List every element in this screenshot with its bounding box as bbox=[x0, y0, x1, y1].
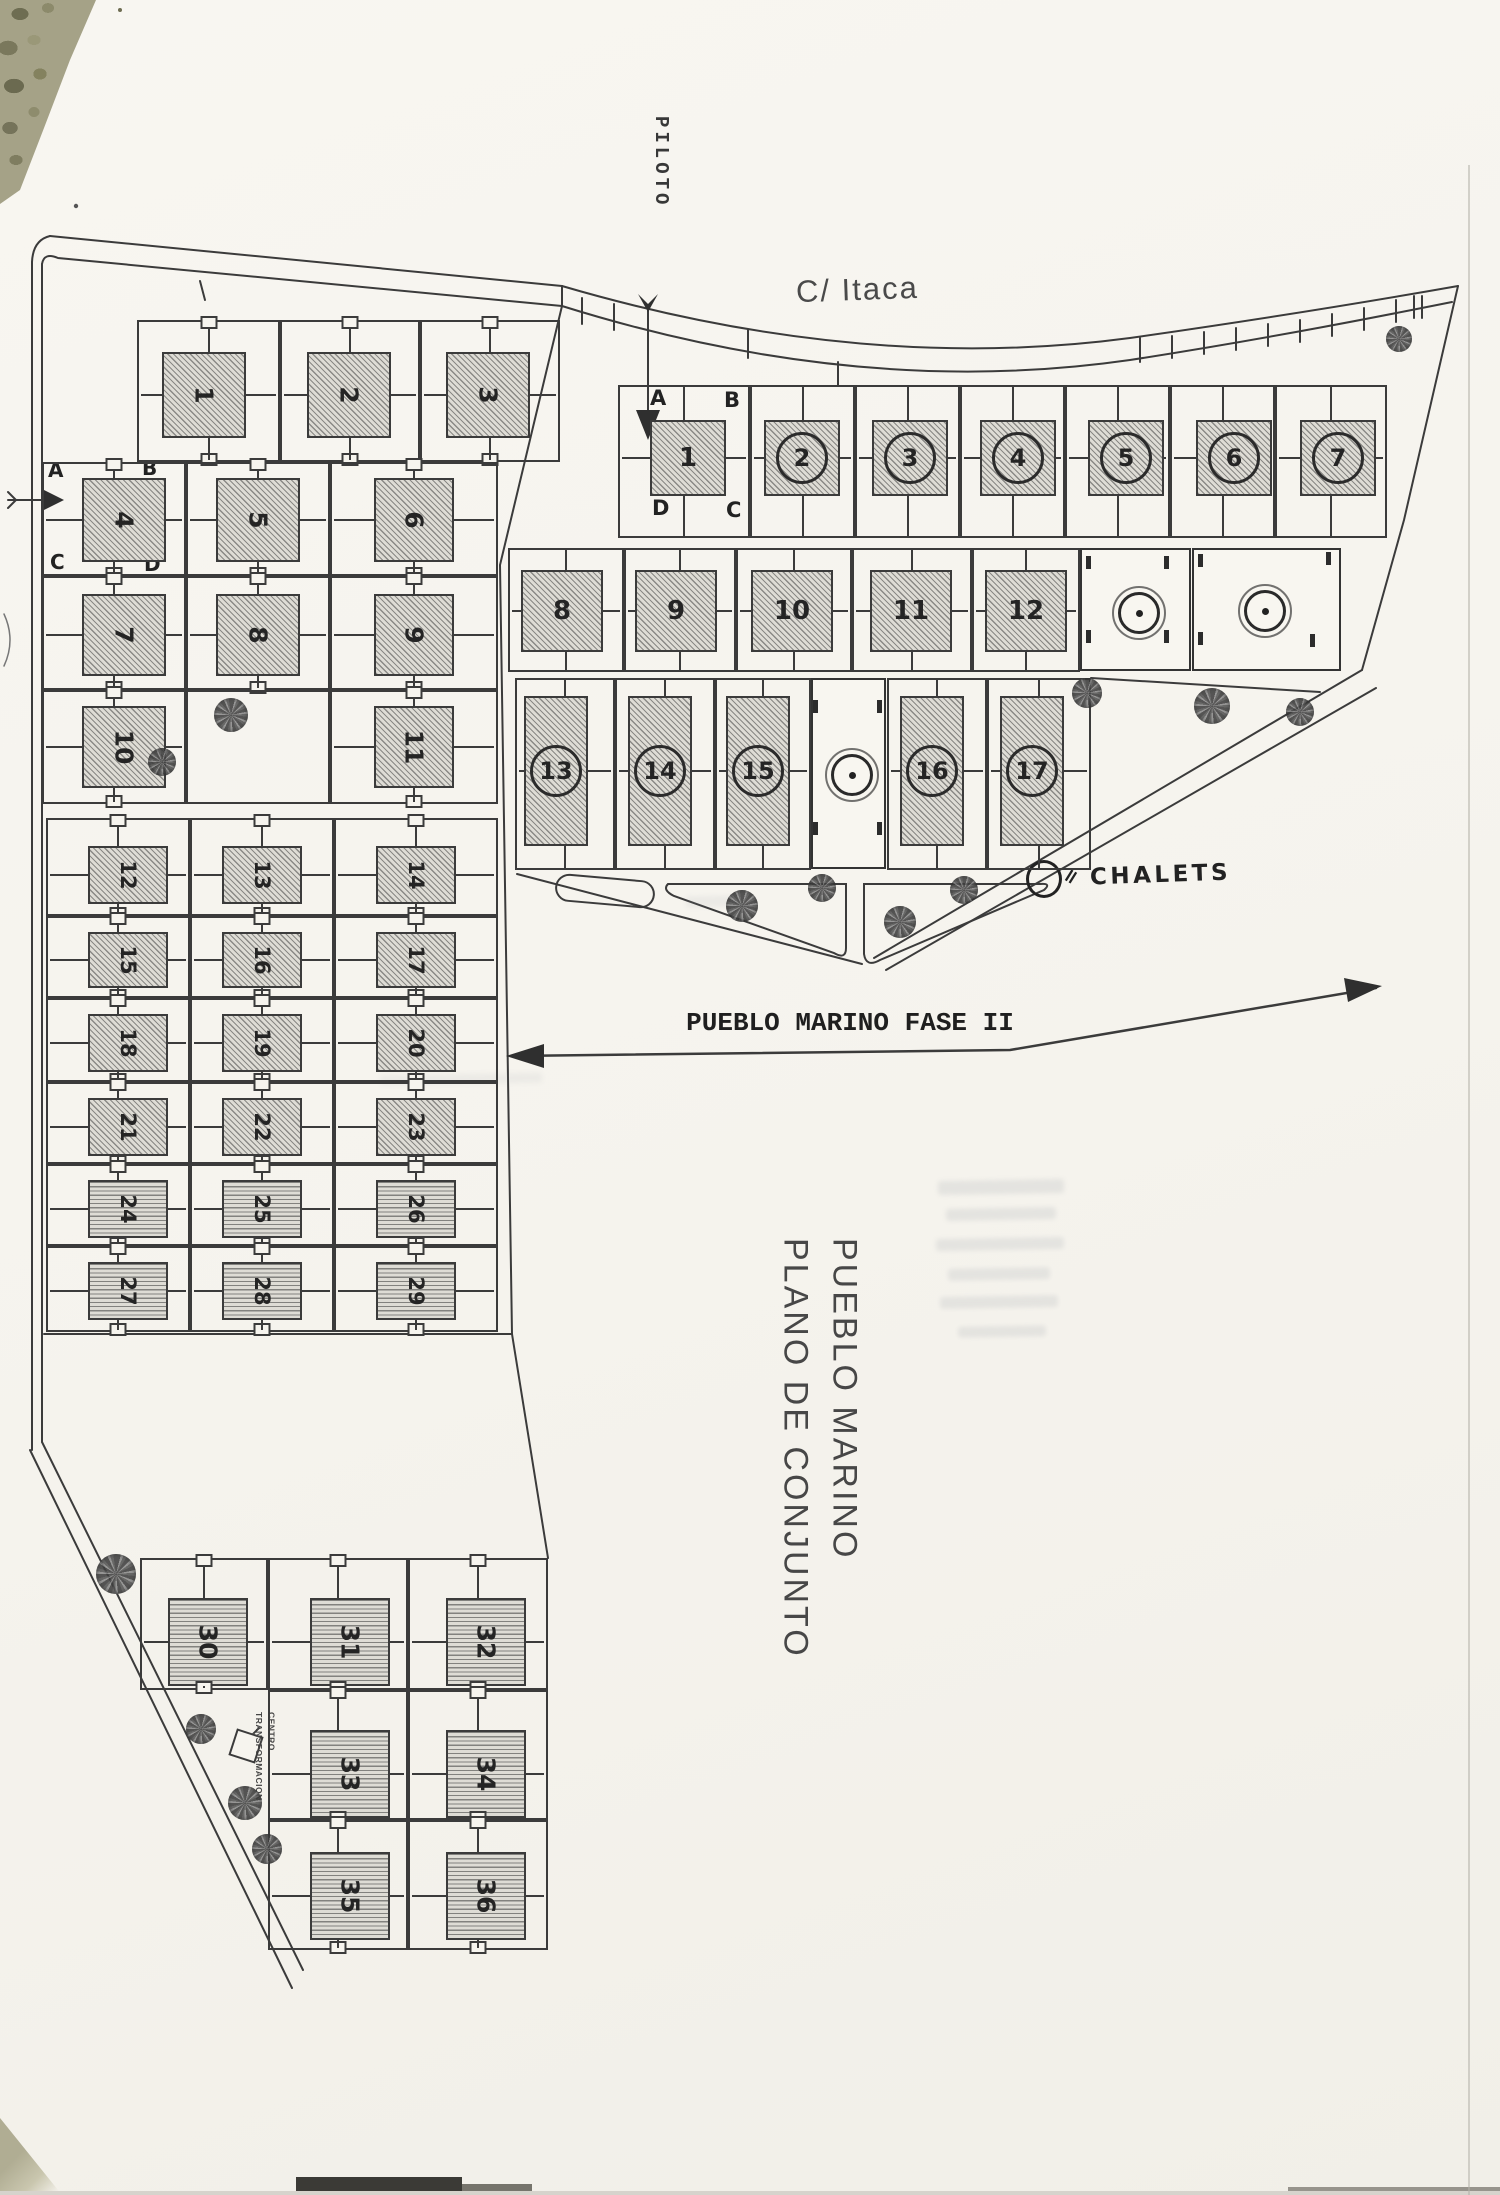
plot-number: 3 bbox=[884, 432, 936, 484]
plot-building: 2 bbox=[764, 420, 840, 496]
plot-cell-9: 9 bbox=[624, 548, 736, 672]
plot-cell-15: 15 bbox=[46, 916, 190, 998]
plot-building: 8 bbox=[521, 570, 603, 652]
gate-marker bbox=[406, 572, 423, 585]
plot-cell-14: 14 bbox=[334, 818, 498, 916]
plot-building: 33 bbox=[310, 1730, 390, 1818]
plot-number: 20 bbox=[404, 1028, 428, 1057]
plot-cell-31: 31 bbox=[268, 1558, 408, 1690]
plot-cell-11: 11 bbox=[330, 690, 498, 804]
plot-number: 24 bbox=[116, 1194, 140, 1223]
plot-building: 15 bbox=[88, 932, 168, 988]
gate-marker bbox=[110, 912, 127, 925]
plot-building: 12 bbox=[985, 570, 1067, 652]
plot-building: 32 bbox=[446, 1598, 526, 1686]
plot-building: 27 bbox=[88, 1262, 168, 1320]
gate-marker bbox=[254, 814, 271, 827]
street-name: C/ Itaca bbox=[795, 270, 919, 310]
plot-number: 28 bbox=[250, 1276, 274, 1305]
plot-cell-34: 34 bbox=[408, 1690, 548, 1820]
plot-cell-17: 17 bbox=[987, 678, 1091, 870]
plot-building: 9 bbox=[635, 570, 717, 652]
tree-icon bbox=[96, 1554, 136, 1594]
plot-number: 3 bbox=[474, 386, 503, 403]
scan-corner-texture bbox=[0, 0, 104, 212]
plot-cell-15: 15 bbox=[715, 678, 811, 870]
gate-marker bbox=[196, 1681, 213, 1694]
chalet-symbol-icon bbox=[831, 754, 873, 796]
plot-building: 8 bbox=[216, 594, 300, 676]
plot-number: 8 bbox=[553, 596, 571, 626]
gate-marker bbox=[408, 1242, 425, 1255]
corner-tick bbox=[1198, 554, 1203, 567]
corner-tick bbox=[1310, 634, 1315, 647]
drawing-title-line1: PUEBLO MARINO bbox=[819, 1238, 868, 1668]
tree-icon bbox=[252, 1834, 282, 1864]
plot-cell-13: 13 bbox=[190, 818, 334, 916]
plot-building: 1 bbox=[650, 420, 726, 496]
plot-building: 1 bbox=[162, 352, 246, 438]
plot-number: 17 bbox=[1006, 745, 1058, 797]
plot-building: 3 bbox=[446, 352, 530, 438]
chalet-symbol-icon bbox=[1244, 590, 1286, 632]
plot-number: 7 bbox=[1312, 432, 1364, 484]
gate-marker bbox=[254, 1242, 271, 1255]
gate-marker bbox=[342, 316, 359, 329]
gate-marker bbox=[254, 1078, 271, 1091]
gate-marker bbox=[408, 994, 425, 1007]
plot-number: 19 bbox=[250, 1028, 274, 1057]
plot-cell-10: 10 bbox=[42, 690, 186, 804]
plot-building: 36 bbox=[446, 1852, 526, 1940]
gate-marker bbox=[408, 1078, 425, 1091]
plot-number: 11 bbox=[893, 596, 929, 626]
gate-marker bbox=[330, 1816, 347, 1829]
plot-cell-8: 8 bbox=[186, 576, 330, 690]
plot-cell-29: 29 bbox=[334, 1246, 498, 1332]
plot-number: 36 bbox=[472, 1879, 501, 1914]
plot-building: 16 bbox=[222, 932, 302, 988]
plot-building: 26 bbox=[376, 1180, 456, 1238]
tree-icon bbox=[1194, 688, 1230, 724]
plot-building: 17 bbox=[1000, 696, 1064, 846]
bleed-through-text bbox=[940, 1295, 1058, 1309]
plot-cell-5: 5 bbox=[1065, 385, 1170, 538]
plot-cell-25: 25 bbox=[190, 1164, 334, 1246]
plot-cell-23: 23 bbox=[334, 1082, 498, 1164]
drawing-title: PUEBLO MARINO PLANO DE CONJUNTO bbox=[770, 1238, 869, 1668]
gate-marker bbox=[254, 1323, 271, 1336]
tree-icon bbox=[186, 1714, 216, 1744]
plot-cell-1: 1 bbox=[618, 385, 750, 538]
plot-building: 24 bbox=[88, 1180, 168, 1238]
plot-cell-30: 30 bbox=[140, 1558, 268, 1690]
drawing-title-line2: PLANO DE CONJUNTO bbox=[770, 1238, 819, 1668]
plot-number: 6 bbox=[1208, 432, 1260, 484]
plot-building: 13 bbox=[524, 696, 588, 846]
plot-building: 34 bbox=[446, 1730, 526, 1818]
gate-marker bbox=[110, 1242, 127, 1255]
plot-building: 4 bbox=[980, 420, 1056, 496]
plot-cell-24: 24 bbox=[46, 1164, 190, 1246]
plot-building: 10 bbox=[82, 706, 166, 788]
plot-cell-3: 3 bbox=[855, 385, 960, 538]
plot-cell-3: 3 bbox=[420, 320, 560, 462]
scan-corner-texture-bottom bbox=[0, 2118, 62, 2195]
plot-cell-16: 16 bbox=[190, 916, 334, 998]
gate-marker bbox=[110, 994, 127, 1007]
gate-marker bbox=[106, 795, 123, 808]
plot-number: 1 bbox=[190, 386, 219, 403]
gate-marker bbox=[196, 1554, 213, 1567]
plot-cell-16: 16 bbox=[887, 678, 987, 870]
plot-cell bbox=[186, 690, 330, 804]
gate-marker bbox=[406, 458, 423, 471]
tree-icon bbox=[726, 890, 758, 922]
gate-marker bbox=[106, 458, 123, 471]
site-plan-scan: C/ Itaca PILOTO PUEBLO MARINO FASE II PU… bbox=[0, 0, 1500, 2195]
plot-cell-18: 18 bbox=[46, 998, 190, 1082]
gate-marker bbox=[254, 994, 271, 1007]
gate-marker bbox=[408, 1160, 425, 1173]
chalet-symbol-icon bbox=[1118, 592, 1160, 634]
plot-number: 18 bbox=[116, 1028, 140, 1057]
plot-number: 17 bbox=[404, 945, 428, 974]
plot-number: 26 bbox=[404, 1194, 428, 1223]
plot-cell-13: 13 bbox=[515, 678, 615, 870]
plot-number: 12 bbox=[1008, 596, 1044, 626]
plot-cell-17: 17 bbox=[334, 916, 498, 998]
plot-building: 28 bbox=[222, 1262, 302, 1320]
plot-building: 19 bbox=[222, 1014, 302, 1072]
plot-building: 20 bbox=[376, 1014, 456, 1072]
plot-cell-21: 21 bbox=[46, 1082, 190, 1164]
gate-marker bbox=[408, 912, 425, 925]
plot-number: 6 bbox=[400, 511, 429, 528]
plot-number: 10 bbox=[110, 730, 139, 765]
tree-icon bbox=[1072, 678, 1102, 708]
corner-tick bbox=[1198, 632, 1203, 645]
plot-cell-6: 6 bbox=[330, 462, 498, 576]
plot-number: 14 bbox=[634, 745, 686, 797]
gate-marker bbox=[406, 795, 423, 808]
plot-building: 9 bbox=[374, 594, 454, 676]
phase2-banner: PUEBLO MARINO FASE II bbox=[640, 1008, 1060, 1038]
plot-building: 14 bbox=[628, 696, 692, 846]
plot-number: 2 bbox=[335, 386, 364, 403]
plot-cell-33: 33 bbox=[268, 1690, 408, 1820]
plot-number: 11 bbox=[400, 730, 429, 765]
plot-cell-4: 4 bbox=[960, 385, 1065, 538]
tree-icon bbox=[214, 698, 248, 732]
plot-number: 4 bbox=[992, 432, 1044, 484]
plot-number: 16 bbox=[250, 945, 274, 974]
plot-number: 2 bbox=[776, 432, 828, 484]
plot-cell-19: 19 bbox=[190, 998, 334, 1082]
gate-marker bbox=[406, 686, 423, 699]
plot-number: 23 bbox=[404, 1112, 428, 1141]
plot-building: 5 bbox=[216, 478, 300, 562]
plot-building: 7 bbox=[82, 594, 166, 676]
tree-icon bbox=[1386, 326, 1412, 352]
plot-number: 12 bbox=[116, 860, 140, 889]
gate-marker bbox=[482, 316, 499, 329]
gate-marker bbox=[110, 814, 127, 827]
plot-number: 15 bbox=[732, 745, 784, 797]
bleed-through-text bbox=[938, 1179, 1064, 1195]
plot-number: 22 bbox=[250, 1112, 274, 1141]
plot-cell-7: 7 bbox=[42, 576, 186, 690]
plot-number: 34 bbox=[472, 1757, 501, 1792]
plot-cell-28: 28 bbox=[190, 1246, 334, 1332]
plot-cell-27: 27 bbox=[46, 1246, 190, 1332]
plot-building: 17 bbox=[376, 932, 456, 988]
corner-tick bbox=[1164, 630, 1169, 643]
plot-building: 6 bbox=[1196, 420, 1272, 496]
plot-number: 13 bbox=[530, 745, 582, 797]
plot-building: 30 bbox=[168, 1598, 248, 1686]
plot-building: 11 bbox=[870, 570, 952, 652]
bleed-through-text bbox=[958, 1325, 1046, 1338]
plot-number: 7 bbox=[110, 626, 139, 643]
gate-marker bbox=[110, 1078, 127, 1091]
plot-number: 9 bbox=[667, 596, 685, 626]
gate-marker bbox=[470, 1816, 487, 1829]
plot-cell-9: 9 bbox=[330, 576, 498, 690]
paper-edge-line bbox=[1468, 165, 1470, 2195]
plot-cell-2: 2 bbox=[280, 320, 420, 462]
plot-number: 8 bbox=[244, 626, 273, 643]
plot-building: 7 bbox=[1300, 420, 1376, 496]
plot-number: 1 bbox=[679, 443, 697, 473]
plot-number: 32 bbox=[472, 1625, 501, 1660]
plot-building: 10 bbox=[751, 570, 833, 652]
plot-cell-12: 12 bbox=[46, 818, 190, 916]
plot-cell-20: 20 bbox=[334, 998, 498, 1082]
gate-marker bbox=[110, 1323, 127, 1336]
plot-cell-8: 8 bbox=[508, 548, 624, 672]
bleed-through-text bbox=[946, 1207, 1056, 1221]
gate-marker bbox=[408, 814, 425, 827]
plot-number: 13 bbox=[250, 860, 274, 889]
gate-marker bbox=[250, 458, 267, 471]
pilot-house-label: PILOTO bbox=[650, 116, 672, 208]
tree-icon bbox=[148, 748, 176, 776]
plot-building: 11 bbox=[374, 706, 454, 788]
plot-building: 22 bbox=[222, 1098, 302, 1156]
plot-building: 18 bbox=[88, 1014, 168, 1072]
plot-building: 21 bbox=[88, 1098, 168, 1156]
plot-number: 15 bbox=[116, 945, 140, 974]
plot-number: 4 bbox=[110, 511, 139, 528]
corner-tick bbox=[813, 700, 818, 713]
gate-marker bbox=[408, 1323, 425, 1336]
plot-cell-5: 5 bbox=[186, 462, 330, 576]
corner-tick bbox=[813, 822, 818, 835]
corner-tick bbox=[1164, 556, 1169, 569]
plot-cell-4: 4 bbox=[42, 462, 186, 576]
corner-tick bbox=[1086, 630, 1091, 643]
corner-tick bbox=[1326, 552, 1331, 565]
plot-number: 21 bbox=[116, 1112, 140, 1141]
gate-marker bbox=[250, 572, 267, 585]
gate-marker bbox=[200, 316, 217, 329]
plot-building: 35 bbox=[310, 1852, 390, 1940]
plot-cell-35: 35 bbox=[268, 1820, 408, 1950]
gate-marker bbox=[470, 1941, 487, 1954]
plot-number: 31 bbox=[336, 1625, 365, 1660]
corner-tick bbox=[877, 822, 882, 835]
legend-label: CHALETS bbox=[1090, 860, 1232, 891]
plot-number: 5 bbox=[1100, 432, 1152, 484]
plot-building: 16 bbox=[900, 696, 964, 846]
plot-number: 27 bbox=[116, 1276, 140, 1305]
plot-cell-36: 36 bbox=[408, 1820, 548, 1950]
plot-building: 25 bbox=[222, 1180, 302, 1238]
plot-cell-10: 10 bbox=[736, 548, 852, 672]
tree-icon bbox=[1286, 698, 1314, 726]
plot-cell-2: 2 bbox=[750, 385, 855, 538]
tree-icon bbox=[808, 874, 836, 902]
plot-cell-6: 6 bbox=[1170, 385, 1275, 538]
plot-building: 5 bbox=[1088, 420, 1164, 496]
gate-marker bbox=[106, 572, 123, 585]
gate-marker bbox=[110, 1160, 127, 1173]
plot-building: 6 bbox=[374, 478, 454, 562]
gate-marker bbox=[330, 1941, 347, 1954]
plot-cell-12: 12 bbox=[972, 548, 1080, 672]
plot-building: 4 bbox=[82, 478, 166, 562]
plot-number: 5 bbox=[244, 511, 273, 528]
corner-tick bbox=[1086, 556, 1091, 569]
scan-edge-line bbox=[0, 2191, 1500, 2195]
street-itaca-lines bbox=[562, 286, 1458, 386]
plot-number: 14 bbox=[404, 860, 428, 889]
plot-cell-14: 14 bbox=[615, 678, 715, 870]
plot-number: 16 bbox=[906, 745, 958, 797]
plot-number: 35 bbox=[336, 1879, 365, 1914]
plot-cell-32: 32 bbox=[408, 1558, 548, 1690]
plot-building: 3 bbox=[872, 420, 948, 496]
corner-tick bbox=[877, 700, 882, 713]
plot-number: 9 bbox=[400, 626, 429, 643]
plot-cell-7: 7 bbox=[1275, 385, 1387, 538]
bleed-through-text bbox=[936, 1237, 1064, 1251]
plot-number: 30 bbox=[194, 1625, 223, 1660]
plot-building: 29 bbox=[376, 1262, 456, 1320]
gate-marker bbox=[330, 1686, 347, 1699]
plot-cell-22: 22 bbox=[190, 1082, 334, 1164]
plot-building: 31 bbox=[310, 1598, 390, 1686]
gate-marker bbox=[106, 686, 123, 699]
plot-building: 15 bbox=[726, 696, 790, 846]
plot-number: 10 bbox=[774, 596, 810, 626]
gate-marker bbox=[470, 1686, 487, 1699]
plot-cell-1: 1 bbox=[137, 320, 280, 462]
gate-marker bbox=[254, 912, 271, 925]
gate-marker bbox=[254, 1160, 271, 1173]
plot-building: 23 bbox=[376, 1098, 456, 1156]
plot-building: 14 bbox=[376, 846, 456, 904]
plot-building: 2 bbox=[307, 352, 391, 438]
tree-icon bbox=[884, 906, 916, 938]
tree-icon bbox=[950, 876, 978, 904]
gate-marker bbox=[330, 1554, 347, 1567]
plot-building: 13 bbox=[222, 846, 302, 904]
plot-number: 25 bbox=[250, 1194, 274, 1223]
gate-marker bbox=[470, 1554, 487, 1567]
plot-number: 33 bbox=[336, 1757, 365, 1792]
bleed-through-text bbox=[948, 1267, 1050, 1281]
tree-icon bbox=[228, 1786, 262, 1820]
plot-building: 12 bbox=[88, 846, 168, 904]
plot-cell-26: 26 bbox=[334, 1164, 498, 1246]
plot-number: 29 bbox=[404, 1276, 428, 1305]
plot-cell-11: 11 bbox=[852, 548, 972, 672]
